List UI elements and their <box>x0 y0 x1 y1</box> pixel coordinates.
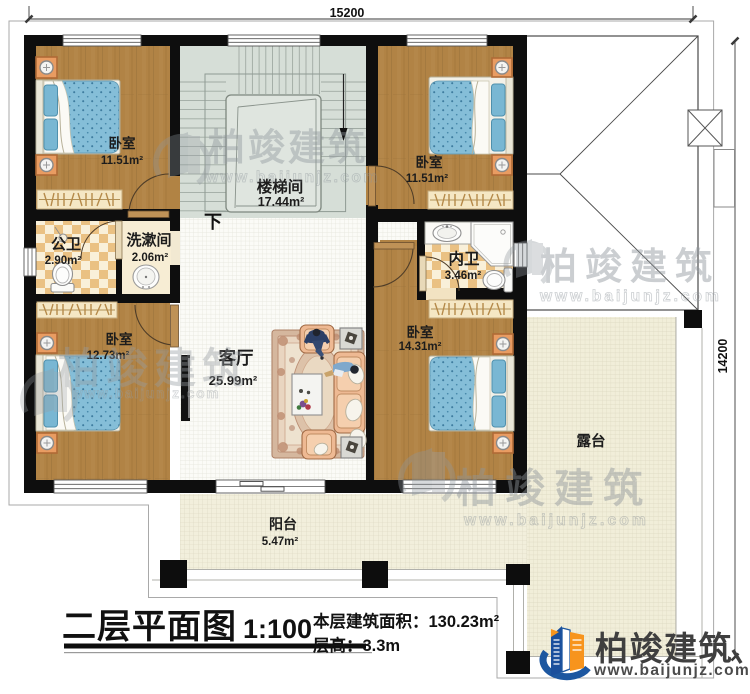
svg-text:柏竣建筑: 柏竣建筑 <box>540 245 720 287</box>
svg-text:2.06m²: 2.06m² <box>132 252 169 264</box>
svg-text:14.31m²: 14.31m² <box>399 341 442 353</box>
svg-text:www.baijunjz.com: www.baijunjz.com <box>71 386 221 401</box>
svg-text:二层平面图: 二层平面图 <box>62 608 237 646</box>
svg-text:5.47m²: 5.47m² <box>262 536 299 548</box>
svg-text:www.baijunjz.com: www.baijunjz.com <box>593 662 750 679</box>
svg-text:公卫: 公卫 <box>51 236 81 253</box>
svg-text:柏竣建筑: 柏竣建筑 <box>58 345 250 392</box>
svg-text:柏竣建筑: 柏竣建筑 <box>208 126 368 168</box>
svg-text:阳台: 阳台 <box>269 516 297 532</box>
svg-text:www.baijunjz.com: www.baijunjz.com <box>539 288 722 305</box>
svg-text:3.46m²: 3.46m² <box>445 270 482 282</box>
svg-text:15200: 15200 <box>330 6 365 20</box>
svg-text:卧室: 卧室 <box>416 154 443 170</box>
svg-text:卧室: 卧室 <box>109 135 136 151</box>
svg-text:14200: 14200 <box>716 339 730 374</box>
svg-text:柏竣建筑: 柏竣建筑 <box>456 467 652 511</box>
svg-text:露台: 露台 <box>577 432 606 450</box>
svg-text:17.44m²: 17.44m² <box>258 195 305 209</box>
svg-text:www.baijunjz.com: www.baijunjz.com <box>463 512 649 529</box>
svg-text:卧室: 卧室 <box>407 324 434 340</box>
svg-text:本层建筑面积：130.23m²: 本层建筑面积：130.23m² <box>313 611 500 631</box>
svg-text:内卫: 内卫 <box>448 249 480 268</box>
svg-text:1:100: 1:100 <box>243 614 312 644</box>
svg-text:洗漱间: 洗漱间 <box>126 231 171 249</box>
svg-text:层高：3.3m: 层高：3.3m <box>313 635 400 655</box>
svg-text:2.90m²: 2.90m² <box>45 255 82 267</box>
svg-text:11.51m²: 11.51m² <box>406 173 448 185</box>
svg-text:www.baijunjz.com: www.baijunjz.com <box>205 169 380 186</box>
svg-text:下: 下 <box>204 212 222 232</box>
svg-text:11.51m²: 11.51m² <box>101 155 143 167</box>
